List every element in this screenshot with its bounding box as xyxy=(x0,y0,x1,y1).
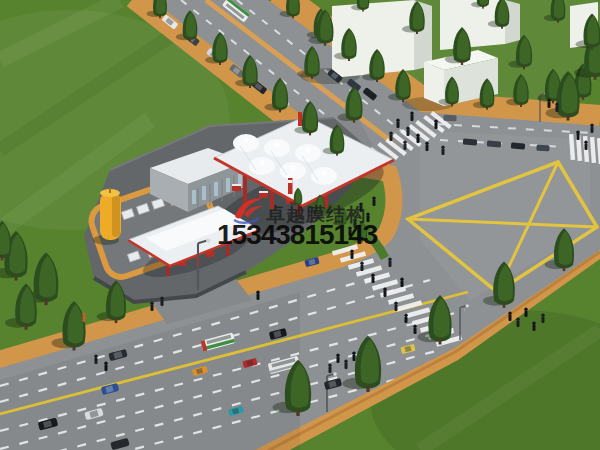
pedestrian xyxy=(359,203,362,213)
vehicle xyxy=(463,139,477,146)
pedestrian xyxy=(532,322,535,332)
pedestrian xyxy=(94,355,97,365)
pedestrian xyxy=(555,103,558,113)
pedestrian xyxy=(328,364,331,374)
pedestrian xyxy=(353,219,356,229)
pedestrian xyxy=(394,302,397,312)
pedestrian xyxy=(396,119,399,129)
pedestrian xyxy=(389,132,392,142)
pedestrian xyxy=(360,262,363,272)
pedestrian xyxy=(584,141,587,151)
pedestrian xyxy=(150,302,153,312)
vehicle xyxy=(511,143,525,150)
pedestrian xyxy=(441,146,444,156)
pedestrian xyxy=(366,213,369,223)
pedestrian xyxy=(425,142,428,152)
vehicle xyxy=(443,115,456,122)
pedestrian xyxy=(524,308,527,318)
pedestrian xyxy=(372,197,375,207)
pedestrian xyxy=(576,131,579,141)
pedestrian xyxy=(590,124,593,134)
pedestrian xyxy=(541,314,544,324)
pedestrian xyxy=(348,227,351,237)
pedestrian xyxy=(336,354,339,364)
pedestrian xyxy=(400,278,403,288)
pedestrian xyxy=(350,250,353,260)
pedestrian xyxy=(434,120,437,130)
pedestrian xyxy=(352,352,355,362)
pedestrian xyxy=(516,318,519,328)
pedestrian xyxy=(416,134,419,144)
pedestrian xyxy=(406,127,409,137)
vehicle xyxy=(536,145,549,152)
pedestrian xyxy=(160,297,163,307)
pedestrian xyxy=(388,258,391,268)
pedestrian xyxy=(256,291,259,301)
architectural-rendering: 卓越膜结构 15343815143 xyxy=(0,0,600,450)
scene-svg xyxy=(0,0,600,450)
pedestrian xyxy=(547,99,550,109)
pedestrian xyxy=(508,312,511,322)
pedestrian xyxy=(371,274,374,284)
pedestrian xyxy=(104,362,107,372)
pedestrian xyxy=(82,313,85,323)
pedestrian xyxy=(383,288,386,298)
pedestrian xyxy=(403,141,406,151)
pedestrian xyxy=(404,314,407,324)
vehicle xyxy=(487,141,501,148)
pedestrian xyxy=(344,360,347,370)
pedestrian xyxy=(410,112,413,122)
pedestrian xyxy=(413,325,416,335)
